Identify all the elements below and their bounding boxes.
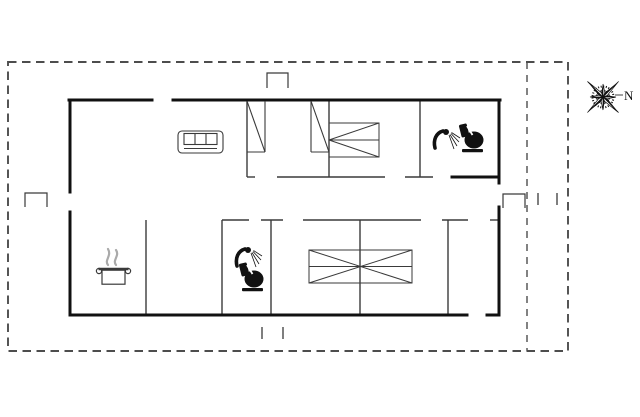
wardrobe-icon xyxy=(247,101,265,152)
toilet-icon xyxy=(459,123,484,152)
wardrobe-icon xyxy=(311,101,329,152)
exterior-walls xyxy=(69,100,500,315)
sofa-icon xyxy=(178,131,223,153)
bed-icon xyxy=(329,123,379,157)
entrance-step xyxy=(503,194,525,208)
steam xyxy=(107,249,109,265)
steam xyxy=(115,250,117,265)
floor-plan: N xyxy=(0,0,640,417)
shower-icon xyxy=(434,129,460,149)
entrance-step xyxy=(267,73,288,88)
floor-plan-svg: N xyxy=(0,0,640,417)
compass-rose: N xyxy=(587,81,634,112)
toilet-icon xyxy=(239,262,264,291)
north-label: N xyxy=(624,88,634,103)
plot-boundary xyxy=(8,62,568,351)
cooking-pot-icon xyxy=(96,249,130,284)
entrance-step xyxy=(25,193,47,207)
